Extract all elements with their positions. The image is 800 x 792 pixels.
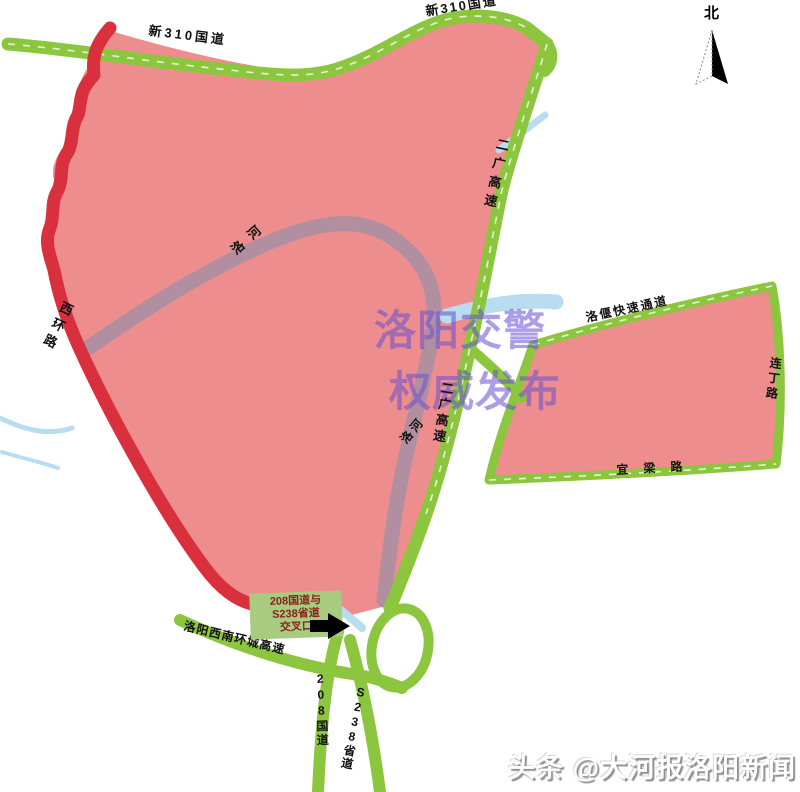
news-credit: 头条 @大河报洛阳新闻 — [508, 746, 796, 785]
callout-arrow — [300, 608, 360, 640]
traffic-restriction-map: 新310国道 新310国道 北 二广高速 洛河 西环路 洛阳交警 权威发布 二广… — [0, 0, 800, 792]
watermark-line2: 权威发布 — [389, 358, 561, 419]
north-arrow-light-half — [696, 30, 712, 84]
stream-southwest-2 — [2, 452, 58, 468]
north-arrow-dark-half — [712, 30, 728, 84]
north-label: 北 — [704, 2, 719, 23]
callout-arrow-shape — [310, 613, 350, 639]
watermark-line1: 洛阳交警 — [374, 297, 546, 358]
stream-southwest-1 — [0, 418, 72, 432]
road-label-g208: 208国道 — [312, 671, 332, 748]
